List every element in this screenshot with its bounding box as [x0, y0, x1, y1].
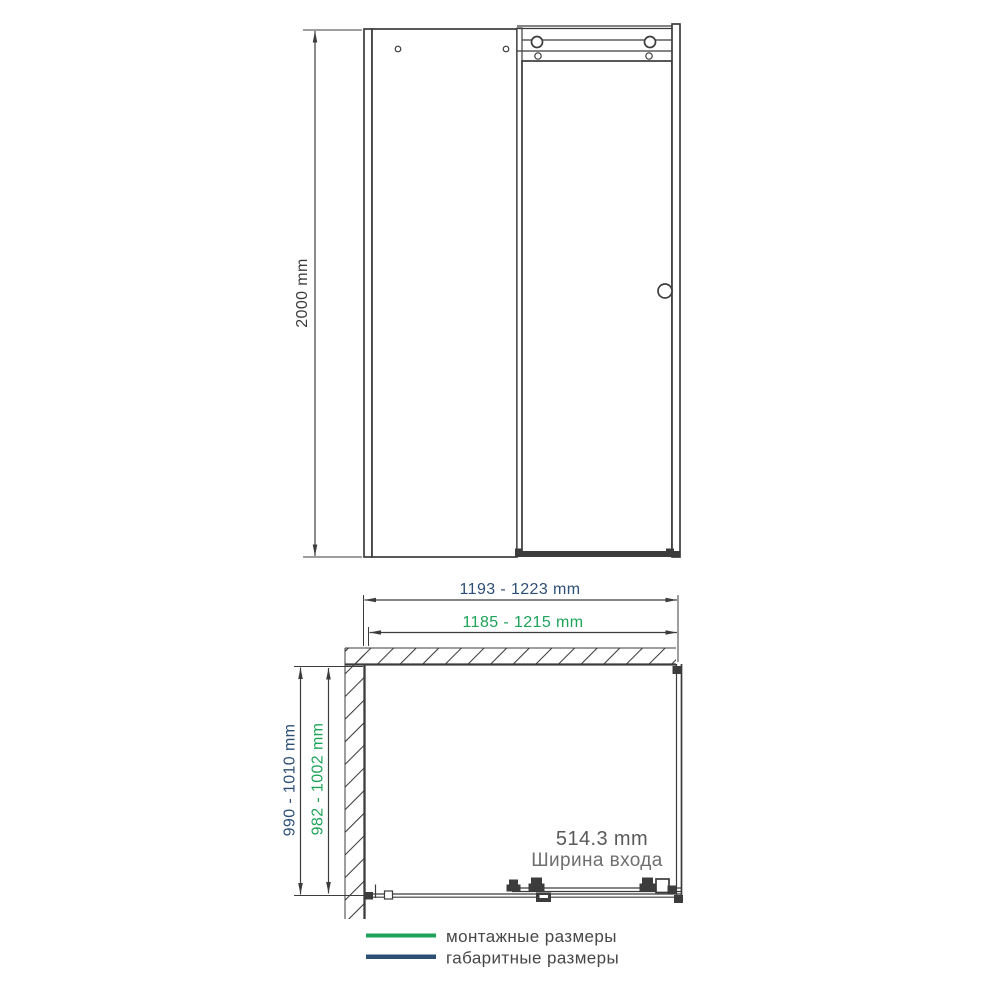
door-handle-knob	[658, 284, 672, 298]
entry-width-annotation: 514.3 mm Ширина входа	[531, 828, 663, 871]
hardware-part	[507, 885, 521, 892]
wall-hatch-fill	[345, 648, 676, 665]
right-wall-profile	[672, 24, 680, 557]
wall-bracket	[673, 666, 682, 674]
left-wall-profile	[364, 29, 372, 557]
mounting-color-swatch	[366, 934, 436, 938]
height-dimension-label: 2000 mm	[294, 258, 311, 328]
mounting-depth-label: 982 - 1002 mm	[310, 723, 327, 836]
door-track-assembly-plan	[364, 878, 681, 903]
entry-width-value: 514.3 mm	[556, 828, 648, 850]
roller-screw	[535, 53, 541, 59]
side-glass-panel-plan	[673, 664, 684, 903]
hardware-part	[509, 880, 518, 885]
technical-drawing-page: 2000 mm	[0, 0, 1000, 1000]
top-sliding-rail	[517, 26, 680, 59]
legend-item-mounting: монтажные размеры	[366, 927, 617, 946]
overall-color-swatch	[366, 955, 436, 960]
fixed-glass-panel	[372, 29, 517, 557]
legend-item-overall: габаритные размеры	[366, 949, 619, 968]
hardware-part	[540, 895, 549, 898]
bottom-bar-end	[666, 549, 674, 558]
wall-hatch-fill	[345, 648, 365, 919]
entry-width-caption: Ширина входа	[531, 850, 663, 871]
mounting-width-label: 1185 - 1215 mm	[463, 614, 584, 631]
legend: монтажные размеры габаритные размеры	[366, 927, 619, 968]
shower-enclosure-drawing: 2000 mm	[0, 0, 1000, 1000]
bottom-guide-bar	[517, 551, 680, 557]
side-wall-hatched	[345, 648, 365, 919]
panel-screw-hole	[503, 46, 509, 52]
hardware-part	[668, 886, 677, 895]
roller-wheel	[645, 37, 656, 48]
legend-overall-label: габаритные размеры	[446, 949, 619, 968]
front-elevation-view: 2000 mm	[294, 24, 680, 557]
roller-screw	[646, 53, 652, 59]
corner-bracket	[674, 895, 683, 903]
roller-wheel	[532, 37, 543, 48]
hardware-part	[385, 891, 393, 899]
back-wall-hatched	[345, 648, 676, 665]
overall-depth-label: 990 - 1010 mm	[282, 724, 299, 837]
legend-mounting-label: монтажные размеры	[446, 927, 617, 946]
bottom-bar-end	[515, 549, 522, 558]
hardware-part	[656, 879, 669, 893]
hardware-part	[642, 878, 653, 884]
hardware-part	[531, 878, 542, 884]
overall-width-label: 1193 - 1223 mm	[460, 581, 581, 598]
sliding-door-glass	[522, 61, 672, 552]
panel-screw-hole	[395, 46, 401, 52]
plan-view: 1193 - 1223 mm 1185 - 1215 mm 990 - 1010…	[282, 581, 684, 919]
hardware-part	[529, 884, 545, 893]
hardware-part	[640, 884, 656, 893]
